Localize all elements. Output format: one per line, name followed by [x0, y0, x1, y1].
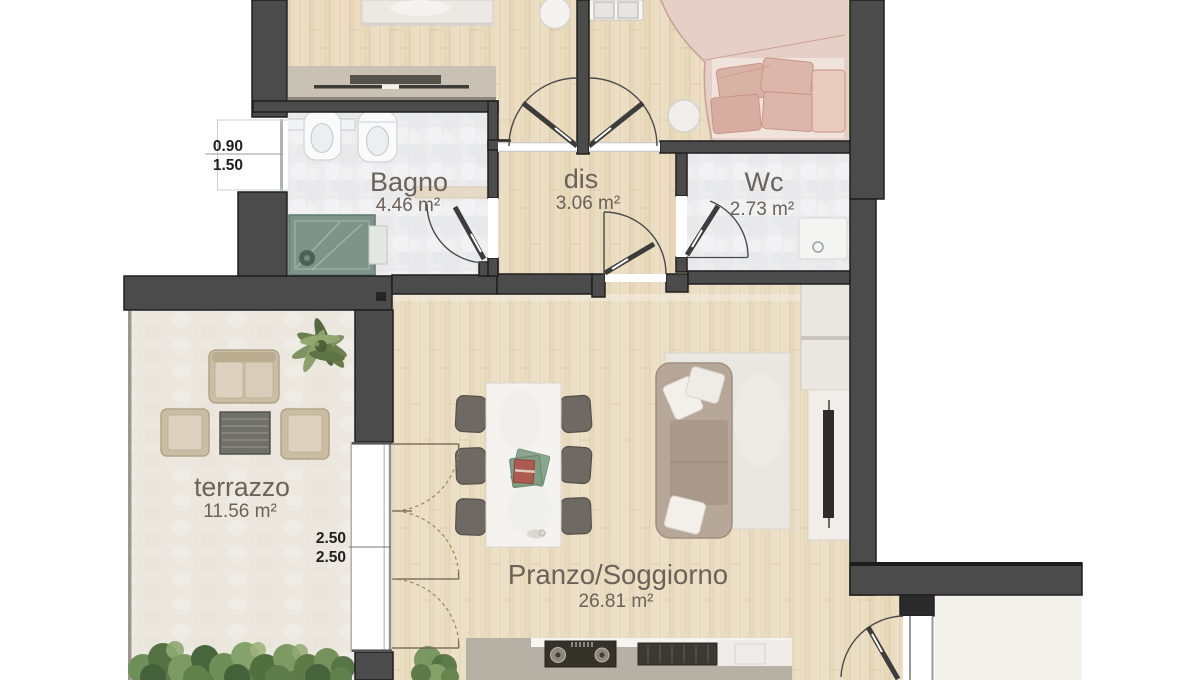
svg-text:3.06 m²: 3.06 m² — [556, 193, 620, 214]
svg-text:11.56 m²: 11.56 m² — [203, 501, 277, 522]
svg-text:Pranzo/Soggiorno: Pranzo/Soggiorno — [508, 559, 728, 590]
svg-text:dis: dis — [564, 164, 599, 194]
svg-text:Wc: Wc — [745, 167, 784, 197]
svg-text:1.50: 1.50 — [213, 157, 243, 174]
svg-text:26.81 m²: 26.81 m² — [579, 591, 654, 612]
svg-text:2.50: 2.50 — [316, 530, 346, 547]
svg-text:terrazzo: terrazzo — [194, 472, 290, 502]
svg-text:2.73 m²: 2.73 m² — [730, 199, 794, 220]
svg-text:2.50: 2.50 — [316, 549, 346, 566]
svg-text:0.90: 0.90 — [213, 138, 243, 155]
svg-text:Bagno: Bagno — [370, 167, 448, 197]
svg-text:4.46 m²: 4.46 m² — [376, 195, 440, 216]
